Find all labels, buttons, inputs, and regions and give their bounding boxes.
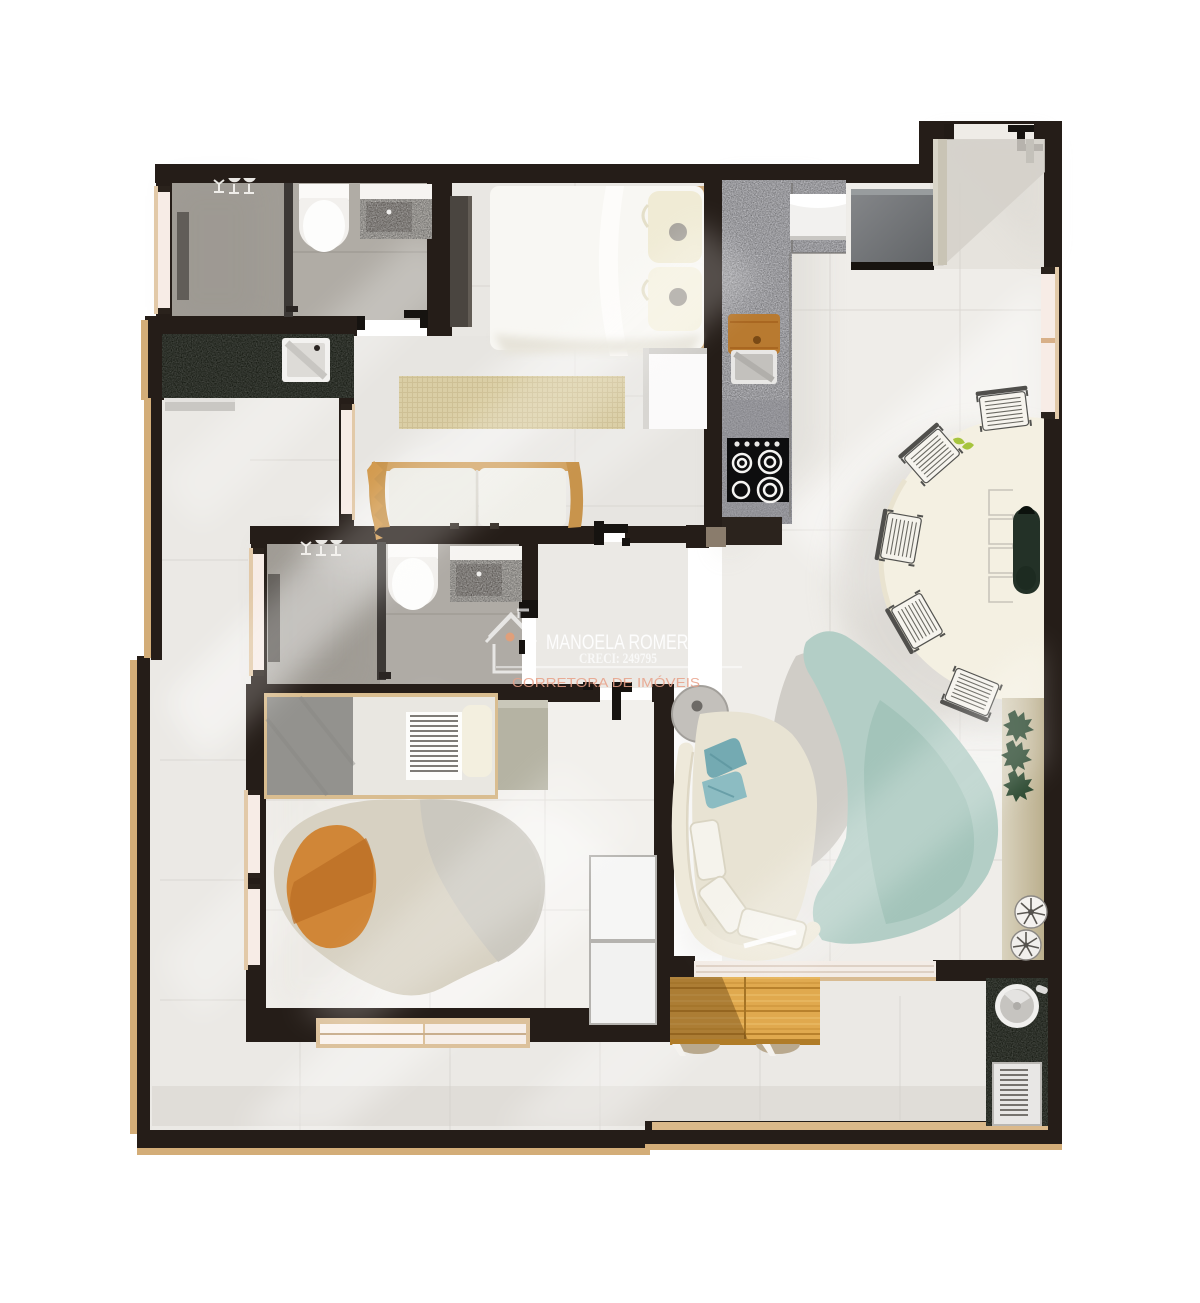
svg-text:CORRETORA DE IMÓVEIS: CORRETORA DE IMÓVEIS <box>512 675 700 690</box>
svg-text:CRECI: 249795: CRECI: 249795 <box>579 651 657 667</box>
